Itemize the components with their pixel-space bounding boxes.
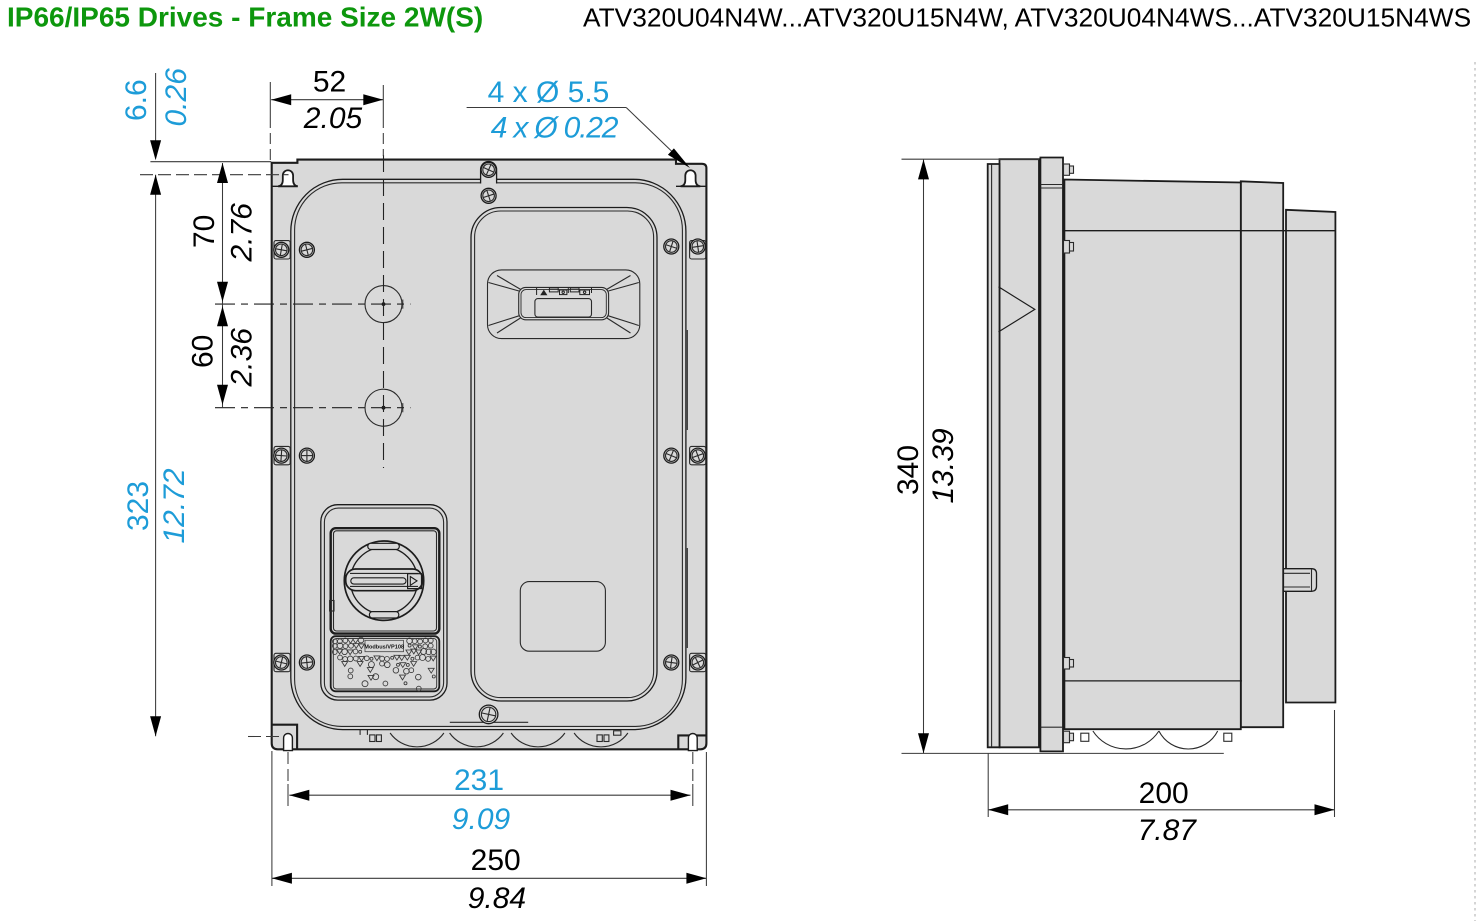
svg-text:4 x Ø 5.5: 4 x Ø 5.5 <box>488 76 610 109</box>
svg-text:231: 231 <box>454 764 504 797</box>
svg-text:ATV320U04N4W...ATV320U15N4W, A: ATV320U04N4W...ATV320U15N4W, ATV320U04N4… <box>583 2 1471 32</box>
svg-text:4 x Ø 0.22: 4 x Ø 0.22 <box>491 112 619 145</box>
svg-text:0.26: 0.26 <box>160 68 193 127</box>
svg-text:70: 70 <box>188 215 221 248</box>
svg-text:52: 52 <box>313 66 346 99</box>
svg-text:200: 200 <box>1139 777 1189 810</box>
svg-text:9.09: 9.09 <box>452 803 511 836</box>
svg-text:2.05: 2.05 <box>303 102 363 135</box>
svg-text:13.39: 13.39 <box>927 428 960 503</box>
svg-text:6.6: 6.6 <box>120 79 153 121</box>
svg-text:340: 340 <box>892 445 925 495</box>
svg-text:7.87: 7.87 <box>1138 814 1198 847</box>
svg-text:Modbus/VP108: Modbus/VP108 <box>364 644 404 650</box>
svg-text:9.84: 9.84 <box>468 882 526 915</box>
svg-text:323: 323 <box>122 481 155 531</box>
svg-text:60: 60 <box>187 335 220 368</box>
svg-text:12.72: 12.72 <box>158 468 191 543</box>
svg-text:IP66/IP65 Drives - Frame Size: IP66/IP65 Drives - Frame Size 2W(S) <box>7 2 483 33</box>
svg-text:2.36: 2.36 <box>225 328 258 388</box>
svg-text:2.76: 2.76 <box>225 203 258 263</box>
svg-text:250: 250 <box>471 844 521 877</box>
